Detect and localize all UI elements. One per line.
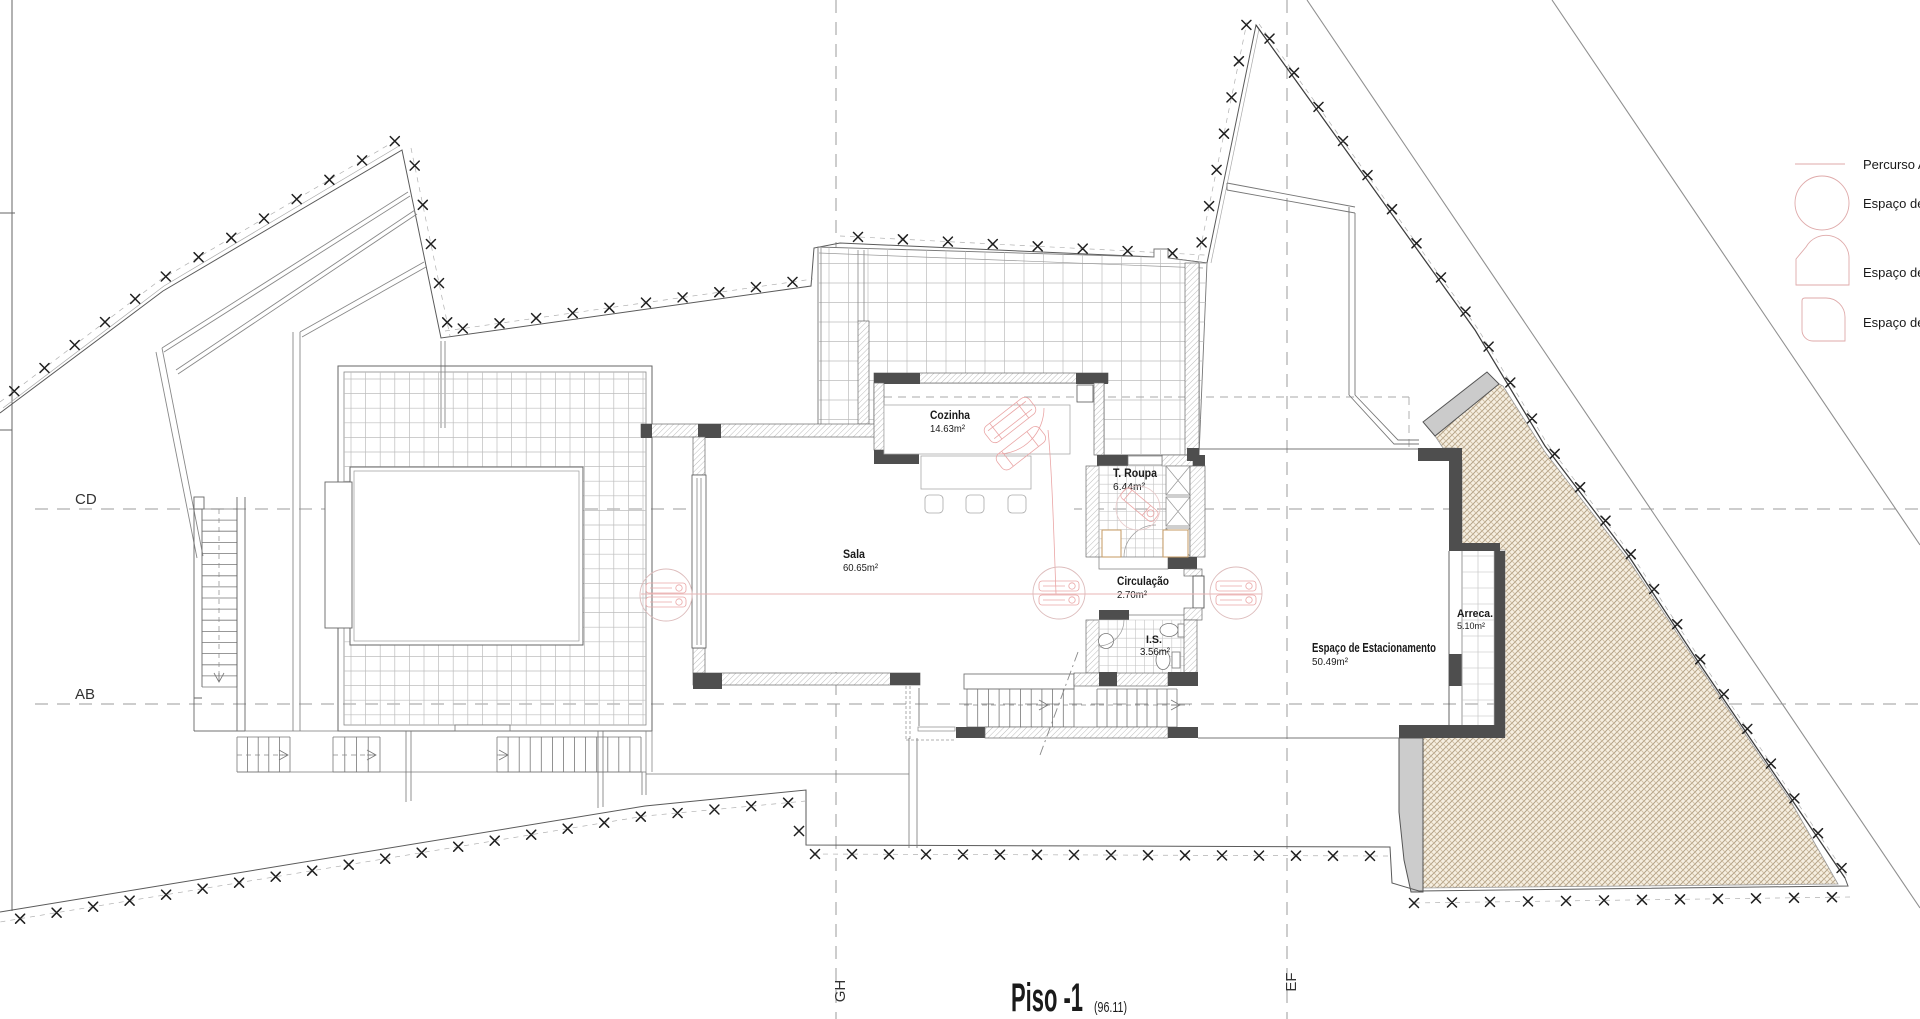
svg-text:Piso -1: Piso -1	[1011, 976, 1083, 1019]
svg-text:Circulação: Circulação	[1117, 574, 1169, 588]
svg-text:14.63m²: 14.63m²	[930, 423, 965, 435]
svg-text:CD: CD	[75, 491, 97, 508]
svg-text:I.S.: I.S.	[1146, 634, 1162, 646]
svg-text:Sala: Sala	[843, 547, 865, 561]
svg-text:(96.11): (96.11)	[1094, 999, 1127, 1016]
svg-text:Percurso Acessível: Percurso Acessível	[1863, 157, 1920, 172]
svg-text:Espaço de Estacionamento: Espaço de Estacionamento	[1312, 641, 1436, 655]
svg-text:EF: EF	[1283, 972, 1300, 991]
svg-text:AB: AB	[75, 686, 95, 703]
svg-text:60.65m²: 60.65m²	[843, 562, 878, 574]
svg-text:Arreca.: Arreca.	[1457, 608, 1493, 620]
svg-text:5.10m²: 5.10m²	[1457, 621, 1485, 632]
svg-text:GH: GH	[832, 980, 849, 1003]
svg-text:Espaço de Rotação: Espaço de Rotação	[1863, 315, 1920, 330]
svg-text:T. Roupa: T. Roupa	[1113, 466, 1157, 480]
svg-text:3.56m²: 3.56m²	[1140, 647, 1171, 658]
svg-text:2.70m²: 2.70m²	[1117, 590, 1148, 601]
svg-text:Cozinha: Cozinha	[930, 408, 970, 422]
svg-text:Espaço de Rotação: Espaço de Rotação	[1863, 265, 1920, 280]
svg-text:50.49m²: 50.49m²	[1312, 657, 1349, 668]
svg-text:Espaço de Rotação: Espaço de Rotação	[1863, 196, 1920, 211]
